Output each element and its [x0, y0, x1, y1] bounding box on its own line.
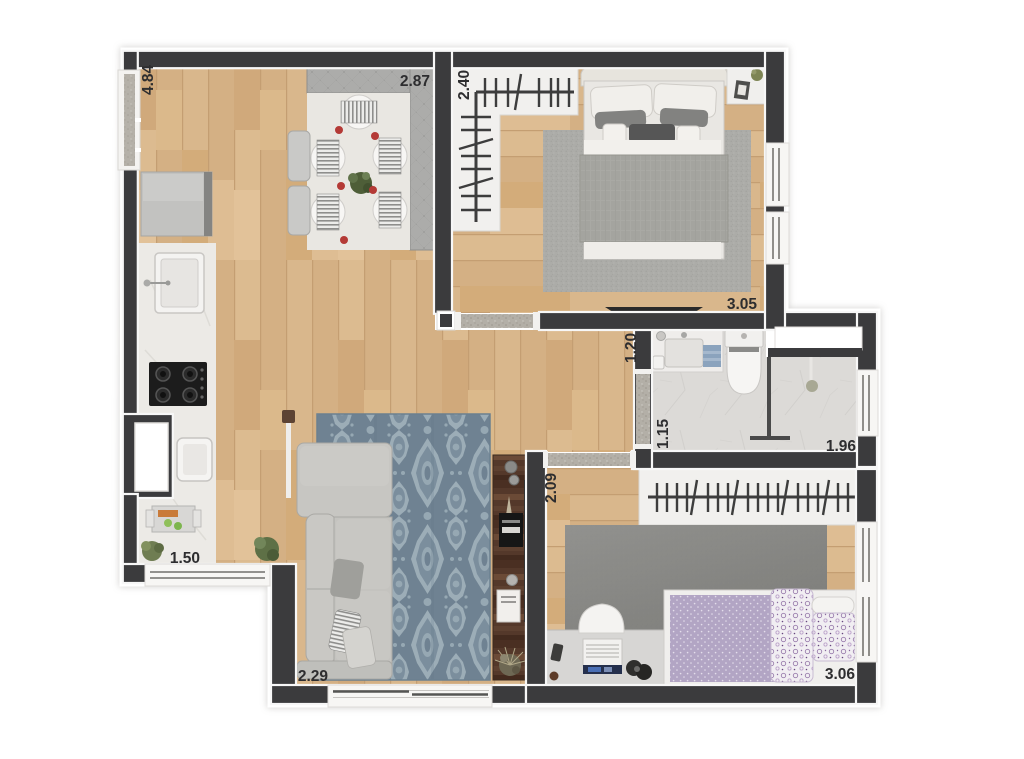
svg-text:1.15: 1.15	[655, 418, 672, 449]
svg-text:2.09: 2.09	[543, 472, 560, 503]
svg-text:3.05: 3.05	[727, 296, 758, 313]
svg-text:2.29: 2.29	[298, 668, 329, 685]
svg-text:1.20: 1.20	[623, 333, 640, 363]
svg-text:1.96: 1.96	[826, 438, 857, 455]
svg-text:2.40: 2.40	[456, 70, 473, 100]
svg-text:1.50: 1.50	[170, 550, 200, 567]
svg-text:4.84: 4.84	[140, 64, 157, 95]
svg-text:2.87: 2.87	[400, 73, 430, 90]
svg-text:3.06: 3.06	[825, 666, 856, 683]
